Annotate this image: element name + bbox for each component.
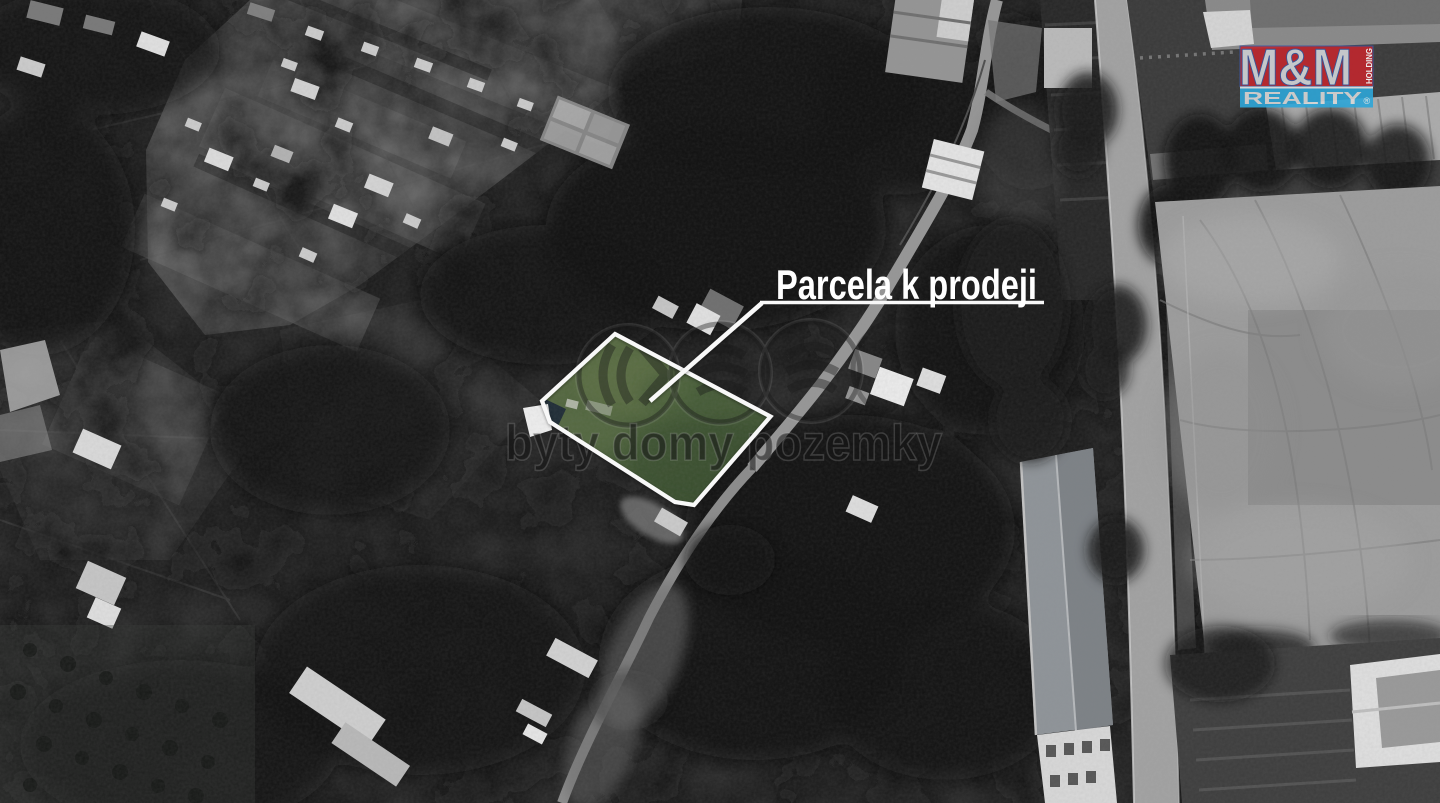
svg-text:Parcela k prodeji: Parcela k prodeji <box>776 261 1037 308</box>
svg-text:HOLDING: HOLDING <box>1364 48 1374 84</box>
svg-text:byty domy pozemky: byty domy pozemky <box>505 415 942 471</box>
svg-text:®: ® <box>1364 96 1371 106</box>
svg-text:REALITY: REALITY <box>1243 88 1363 108</box>
